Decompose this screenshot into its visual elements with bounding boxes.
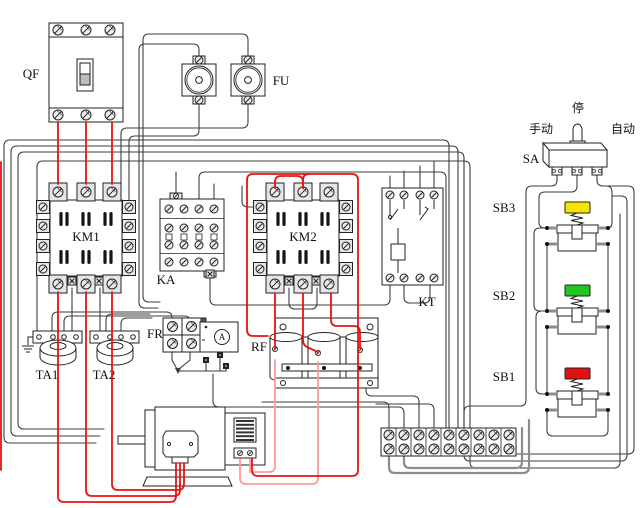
wiring-diagram: QF FU KM1 KA KM2 KT FR A (0, 0, 643, 508)
wire-segment (376, 404, 434, 428)
wiring-diagram-svg: QF FU KM1 KA KM2 KT FR A (0, 0, 643, 508)
sa-manual-label: 手动 (529, 122, 553, 136)
terminal-strip (381, 428, 516, 456)
sa-label: SA (523, 151, 540, 166)
breaker-qf (49, 23, 123, 122)
relay-ka (160, 193, 224, 278)
fu-label: FU (273, 73, 290, 88)
wire-segment (121, 100, 248, 186)
sb3-cap (565, 202, 590, 213)
km2-label: KM2 (289, 229, 316, 244)
resistor-rf (270, 318, 378, 388)
pushbutton-sb2 (545, 285, 610, 334)
ka-label: KA (157, 272, 176, 287)
time-relay-kt (382, 188, 443, 285)
kt-label: KT (418, 294, 435, 309)
km1-label: KM1 (72, 229, 99, 244)
sa-stop-label: 停 (572, 100, 584, 115)
sb3-label: SB3 (493, 200, 515, 215)
qf-label: QF (23, 66, 40, 81)
wire-segment (536, 311, 546, 394)
fuse-group-fu (182, 56, 265, 104)
pushbutton-sb3 (545, 202, 610, 251)
sa-lever (573, 124, 582, 143)
ammeter-letter: A (219, 332, 226, 342)
fuse-left (182, 56, 216, 104)
pushbutton-sb1 (545, 368, 610, 417)
ta1-label: TA1 (36, 367, 59, 382)
sb2-label: SB2 (493, 288, 515, 303)
fuse-right (231, 56, 265, 104)
ammeter: A (200, 322, 238, 369)
wire-segment (262, 402, 389, 428)
sb1-label: SB1 (493, 369, 515, 384)
sb2-cap (565, 285, 590, 296)
sb1-cap (565, 368, 590, 379)
fr-label: FR (147, 326, 163, 341)
wire-segment (597, 175, 612, 228)
wire-segment (534, 228, 546, 311)
wire-segment (242, 186, 254, 207)
motor (118, 407, 265, 486)
wire-segment (178, 369, 226, 371)
rf-label: RF (251, 339, 267, 354)
current-transformer-ta1 (22, 331, 82, 365)
current-transformer-ta2 (90, 331, 139, 365)
wire-segment (4, 140, 449, 443)
sa-auto-label: 自动 (611, 122, 635, 136)
